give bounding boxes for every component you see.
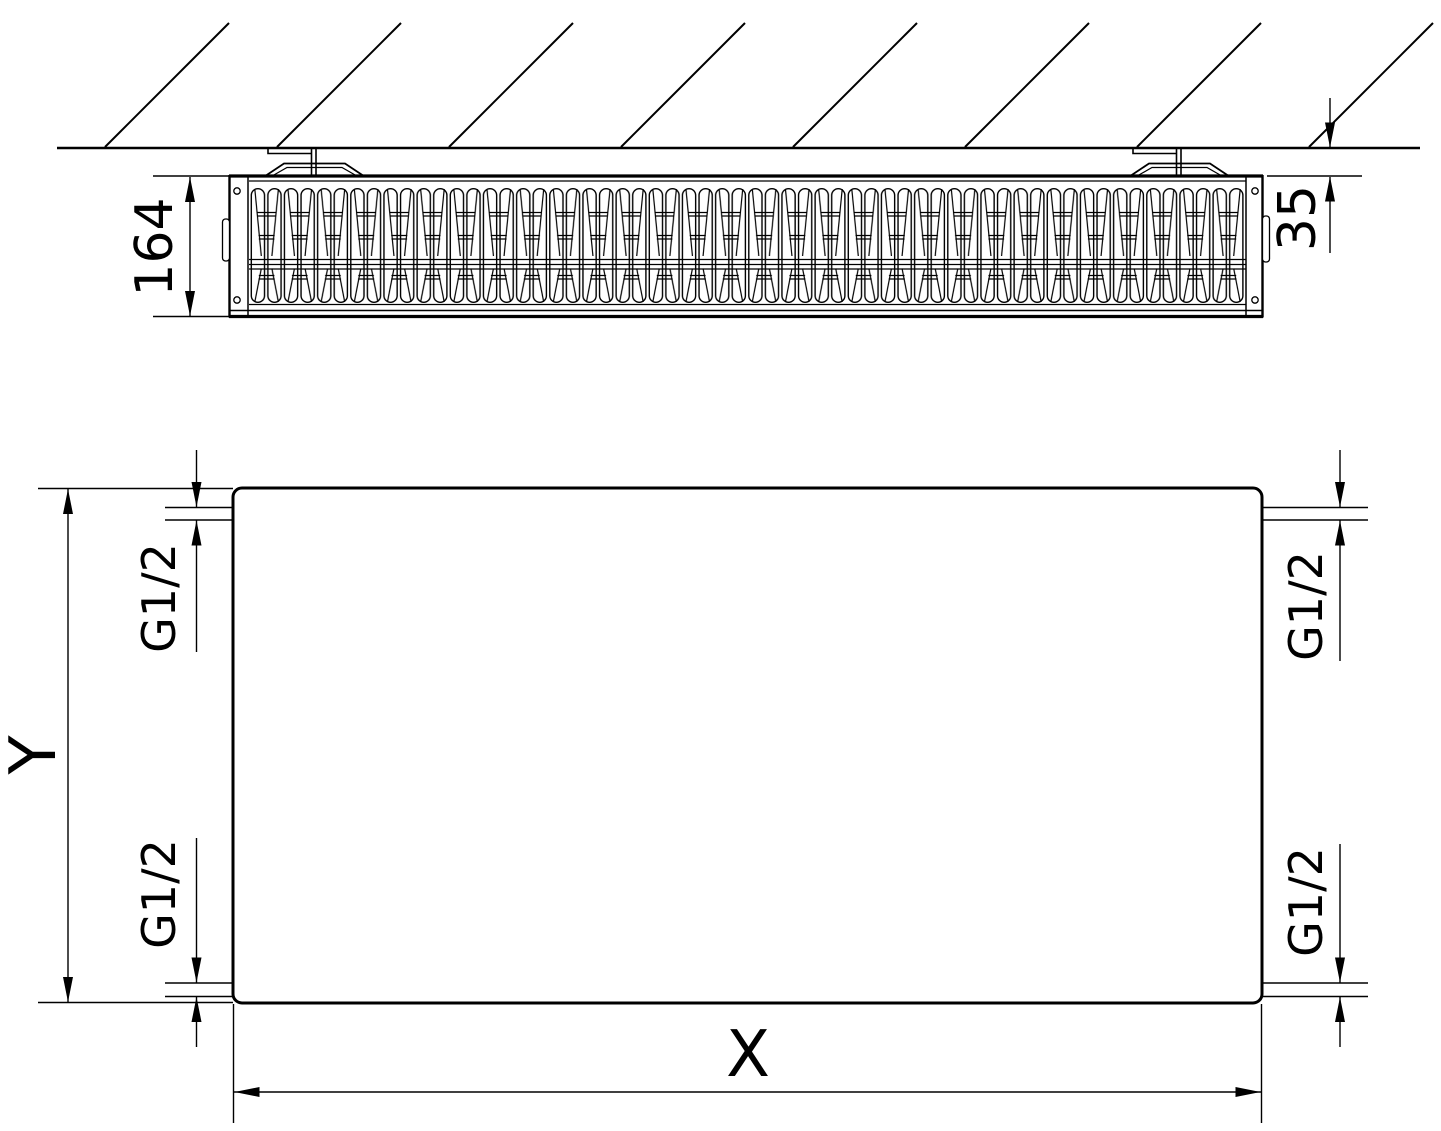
connection-label-top-left: G1/2 xyxy=(132,543,186,653)
mounting-bracket-left xyxy=(266,148,363,176)
radiator-top-view xyxy=(223,175,1270,318)
end-cap-screw xyxy=(234,297,240,303)
wall-distance-dimension-label: 35 xyxy=(1268,185,1328,251)
radiator-technical-drawing: 164 35 Y X G1/2 xyxy=(0,0,1441,1131)
end-cap-screw xyxy=(1252,297,1258,303)
connection-label-bottom-right: G1/2 xyxy=(1279,847,1333,957)
arrow-up-icon xyxy=(1335,521,1345,546)
radiator-front-panel xyxy=(233,488,1262,1003)
height-dimension-label: Y xyxy=(0,735,71,776)
arrow-up-icon xyxy=(1335,997,1345,1022)
convector-fins xyxy=(250,188,1245,303)
arrow-up-icon xyxy=(192,521,202,546)
arrow-down-icon xyxy=(1335,482,1345,507)
arrow-down-icon xyxy=(192,482,202,507)
end-cap-screw xyxy=(234,188,240,194)
arrow-down-icon xyxy=(185,291,195,316)
connection-label-bottom-left: G1/2 xyxy=(132,839,186,949)
arrow-up-icon xyxy=(185,177,195,202)
arrow-down-icon xyxy=(192,958,202,983)
arrow-down-icon xyxy=(1335,958,1345,983)
arrow-up-icon xyxy=(63,489,73,514)
end-cap-screw xyxy=(1252,188,1258,194)
wall-hatching xyxy=(105,23,1433,147)
arrow-right-icon xyxy=(1236,1087,1261,1097)
side-tab-left xyxy=(223,219,230,261)
depth-dimension-label: 164 xyxy=(125,197,185,296)
arrow-down-icon xyxy=(63,977,73,1002)
technical-drawing-canvas: 164 35 Y X G1/2 xyxy=(0,0,1441,1131)
arrow-up-icon xyxy=(192,997,202,1022)
mounting-bracket-right xyxy=(1131,148,1228,176)
width-dimension-label: X xyxy=(726,1018,770,1092)
arrow-left-icon xyxy=(235,1087,260,1097)
arrow-down-icon xyxy=(1325,123,1335,148)
connection-label-top-right: G1/2 xyxy=(1279,551,1333,661)
